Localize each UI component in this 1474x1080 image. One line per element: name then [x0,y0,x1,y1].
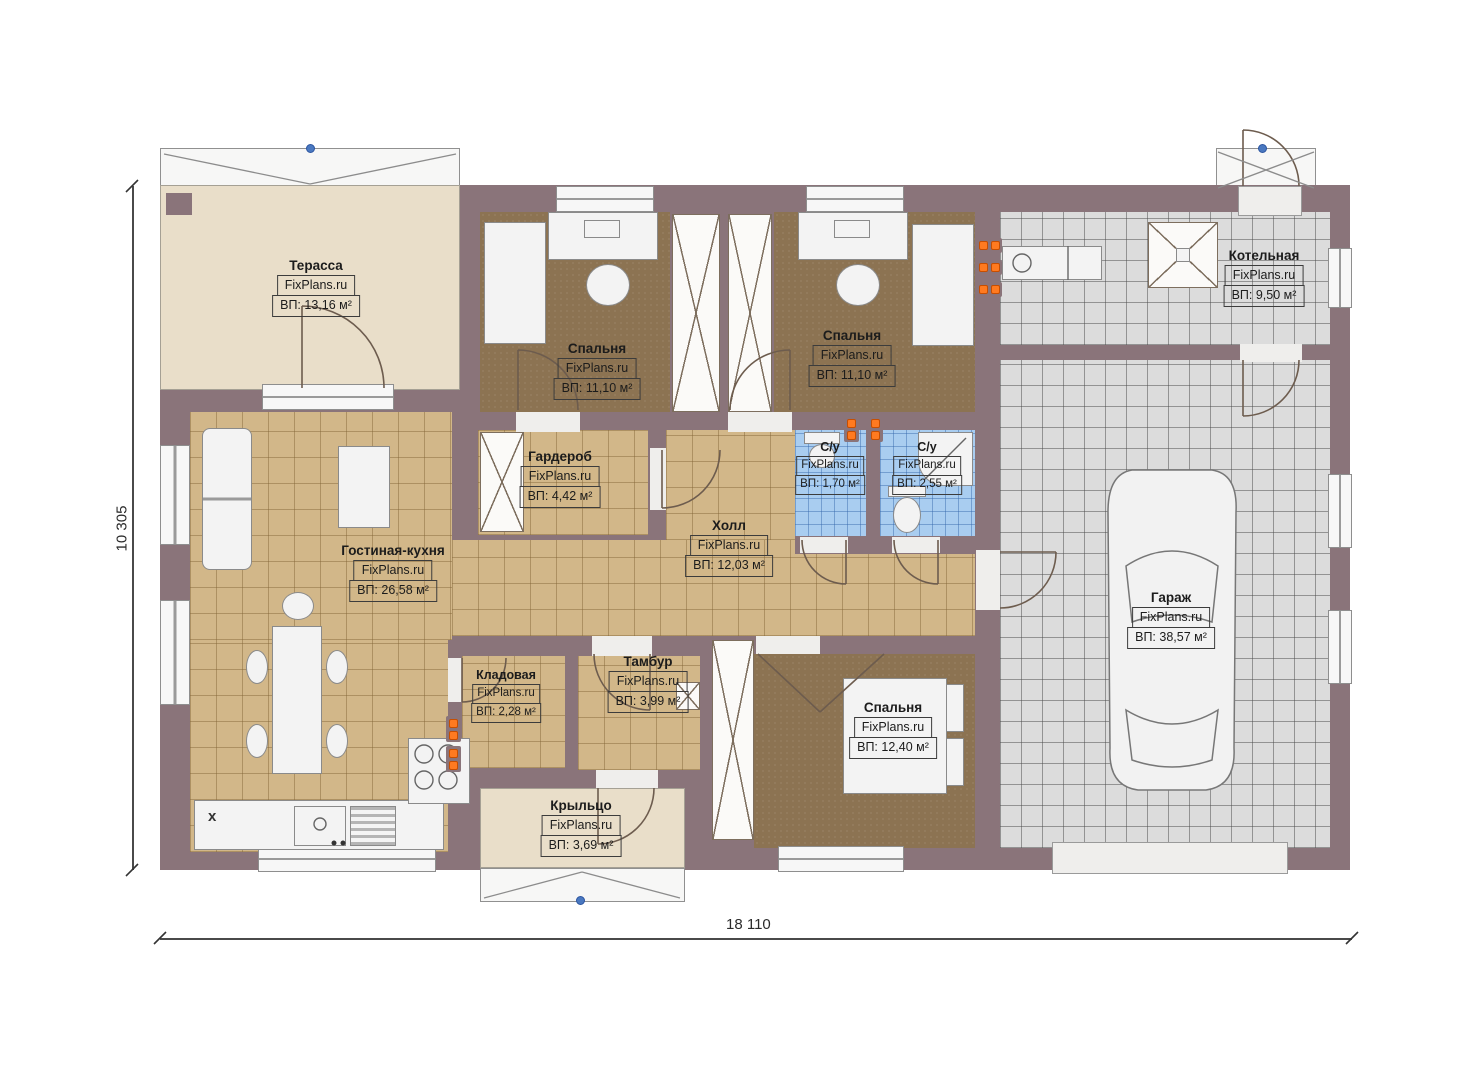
boiler-entry-door [1238,186,1302,216]
dimension-line-horizontal [160,938,1352,940]
wc1-radiator [844,416,859,442]
boiler-entry-canopy [1216,148,1316,190]
kitchen-dishwasher [350,806,396,846]
wc2-door-opening [892,537,940,553]
garage-gate [1052,842,1288,874]
garage-door-opening [976,550,1000,610]
boiler-drain-center [1176,248,1190,262]
fridge-position-mark: x [208,808,216,825]
bedroom2-bed [912,224,974,346]
car-mirror-left [1112,556,1121,574]
wardrobe-closet [480,432,524,532]
roof-anchor-porch [576,896,585,905]
kitchen-sink [294,806,346,846]
bedroom1-wardrobe [672,214,720,412]
bedroom2-door-opening [728,412,792,432]
bedroom1-bed [484,222,546,344]
label-wardrobe: Гардероб FixPlans.ru ВП: 4,42 м² [520,449,601,508]
garage-window-1 [1328,474,1352,548]
dining-chair-right-1 [326,650,348,684]
bedroom2-chair [836,264,880,306]
terrace-corner-pier [166,193,192,215]
terrace-roof [160,148,460,188]
label-wc2: С/у FixPlans.ru ВП: 2,55 м² [892,440,962,495]
boiler-garage-door-opening [1240,344,1302,362]
dining-chair-left-2 [246,724,268,758]
terrace-slider-window [262,384,394,410]
label-boiler: Котельная FixPlans.ru ВП: 9,50 м² [1224,248,1305,307]
bedroom1-chair [586,264,630,306]
wc2-radiator [868,416,883,442]
label-porch: Крыльцо FixPlans.ru ВП: 3,69 м² [541,798,622,857]
dimension-width-label: 18 110 [726,916,771,933]
corridor-wardrobe [712,640,754,840]
living-window-left-1 [160,445,190,545]
boiler-window [1328,248,1352,308]
roof-anchor-terrace [306,144,315,153]
boiler-radiator-2 [976,260,1002,275]
bedroom3-pillow-1 [946,684,964,732]
living-window-left-2 [160,600,190,705]
label-storage: Кладовая FixPlans.ru ВП: 2,28 м² [471,668,541,723]
label-bedroom2: Спальня FixPlans.ru ВП: 11,10 м² [809,328,896,387]
tambour-porch-door-opening [596,770,658,788]
living-coffee-table [338,446,390,528]
boiler-unit [1002,246,1102,280]
dimension-height-label: 10 305 [113,506,130,552]
roof-anchor-boiler [1258,144,1267,153]
dining-chair-right-2 [326,724,348,758]
label-bedroom1: Спальня FixPlans.ru ВП: 11,10 м² [554,341,641,400]
car-mirror-right [1223,556,1232,574]
bedroom2-wardrobe [728,214,772,412]
bedroom3-door-opening [756,636,820,654]
hall-tambour-door-opening [592,636,652,656]
bedroom2-printer [834,220,870,238]
bedroom1-door-opening [516,412,580,432]
wc1-door-opening [800,537,848,553]
boiler-radiator-1 [976,238,1002,253]
label-garage: Гараж FixPlans.ru ВП: 38,57 м² [1127,590,1215,649]
bedroom1-window [556,186,654,212]
boiler-radiator-3 [976,282,1002,297]
dining-table [272,626,322,774]
label-bedroom3: Спальня FixPlans.ru ВП: 12,40 м² [849,700,937,759]
label-wc1: С/у FixPlans.ru ВП: 1,70 м² [795,440,865,495]
bedroom3-pillow-2 [946,738,964,786]
dining-chair-left-1 [246,650,268,684]
dining-chair-top [282,592,314,620]
label-tambour: Тамбур FixPlans.ru ВП: 3,99 м² [608,654,689,713]
kitchen-radiator-1 [446,716,461,742]
storage-door-opening [448,658,462,702]
bedroom3-window [778,846,904,872]
wardrobe-door-opening [650,448,666,510]
living-sofa [202,428,252,570]
dimension-line-vertical [132,186,134,870]
label-living: Гостиная-кухня FixPlans.ru ВП: 26,58 м² [341,543,444,602]
label-hall: Холл FixPlans.ru ВП: 12,03 м² [685,518,773,577]
kitchen-radiator-2 [446,746,461,772]
label-terrace: Терасса FixPlans.ru ВП: 13,16 м² [272,258,360,317]
bedroom2-window [806,186,904,212]
floor-plan: 10 305 18 110 [0,0,1474,1080]
garage-window-2 [1328,610,1352,684]
wc2-toilet-bowl [893,497,921,533]
bedroom1-printer [584,220,620,238]
